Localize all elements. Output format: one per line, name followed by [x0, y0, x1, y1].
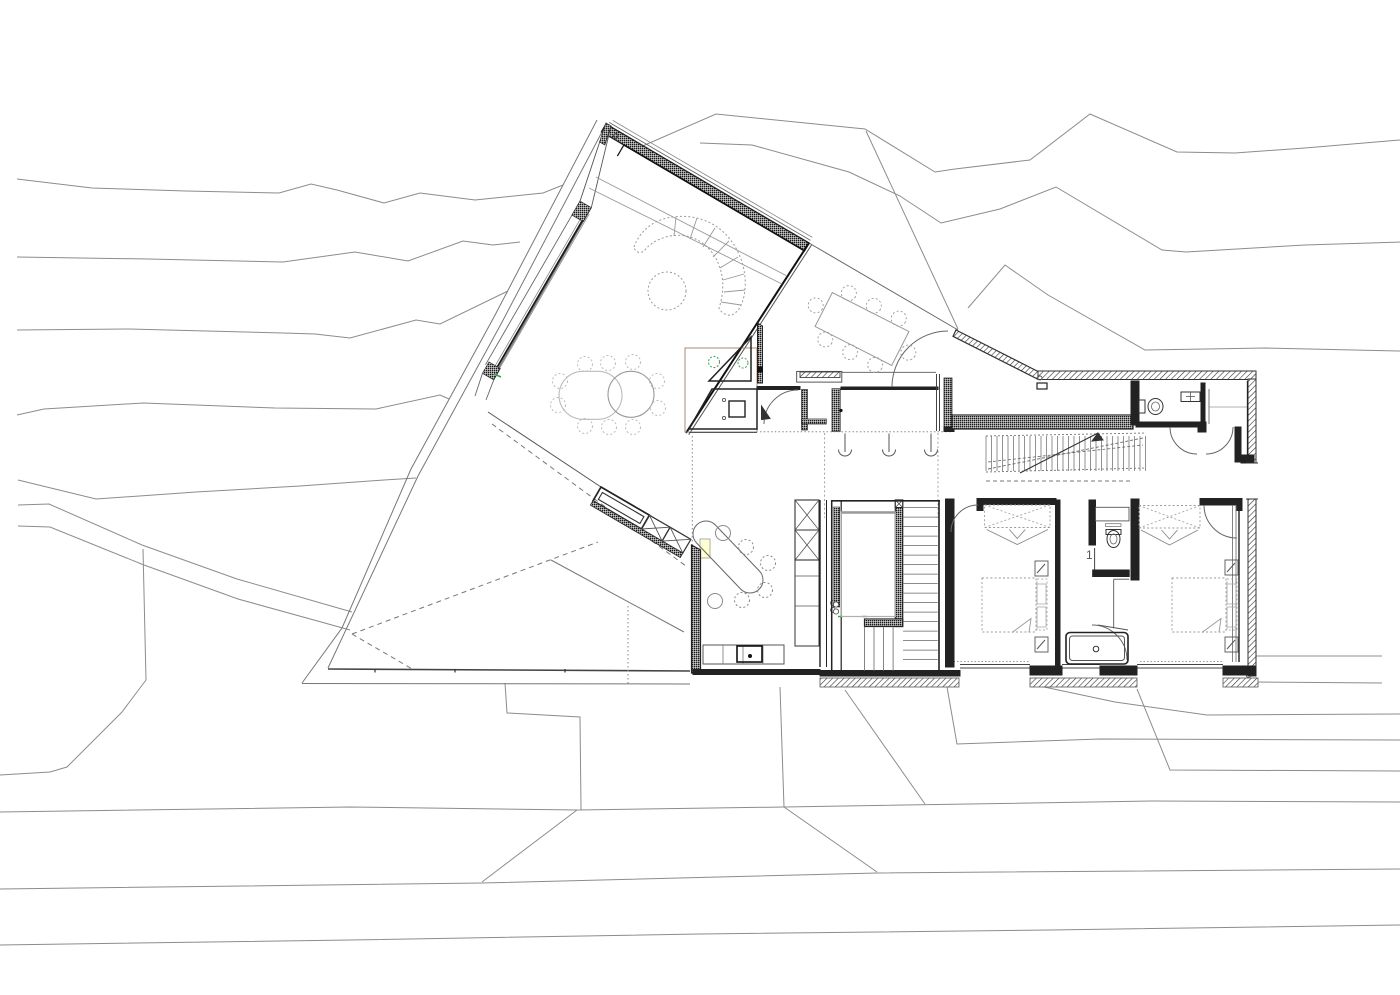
svg-text:1: 1 — [1086, 548, 1093, 562]
